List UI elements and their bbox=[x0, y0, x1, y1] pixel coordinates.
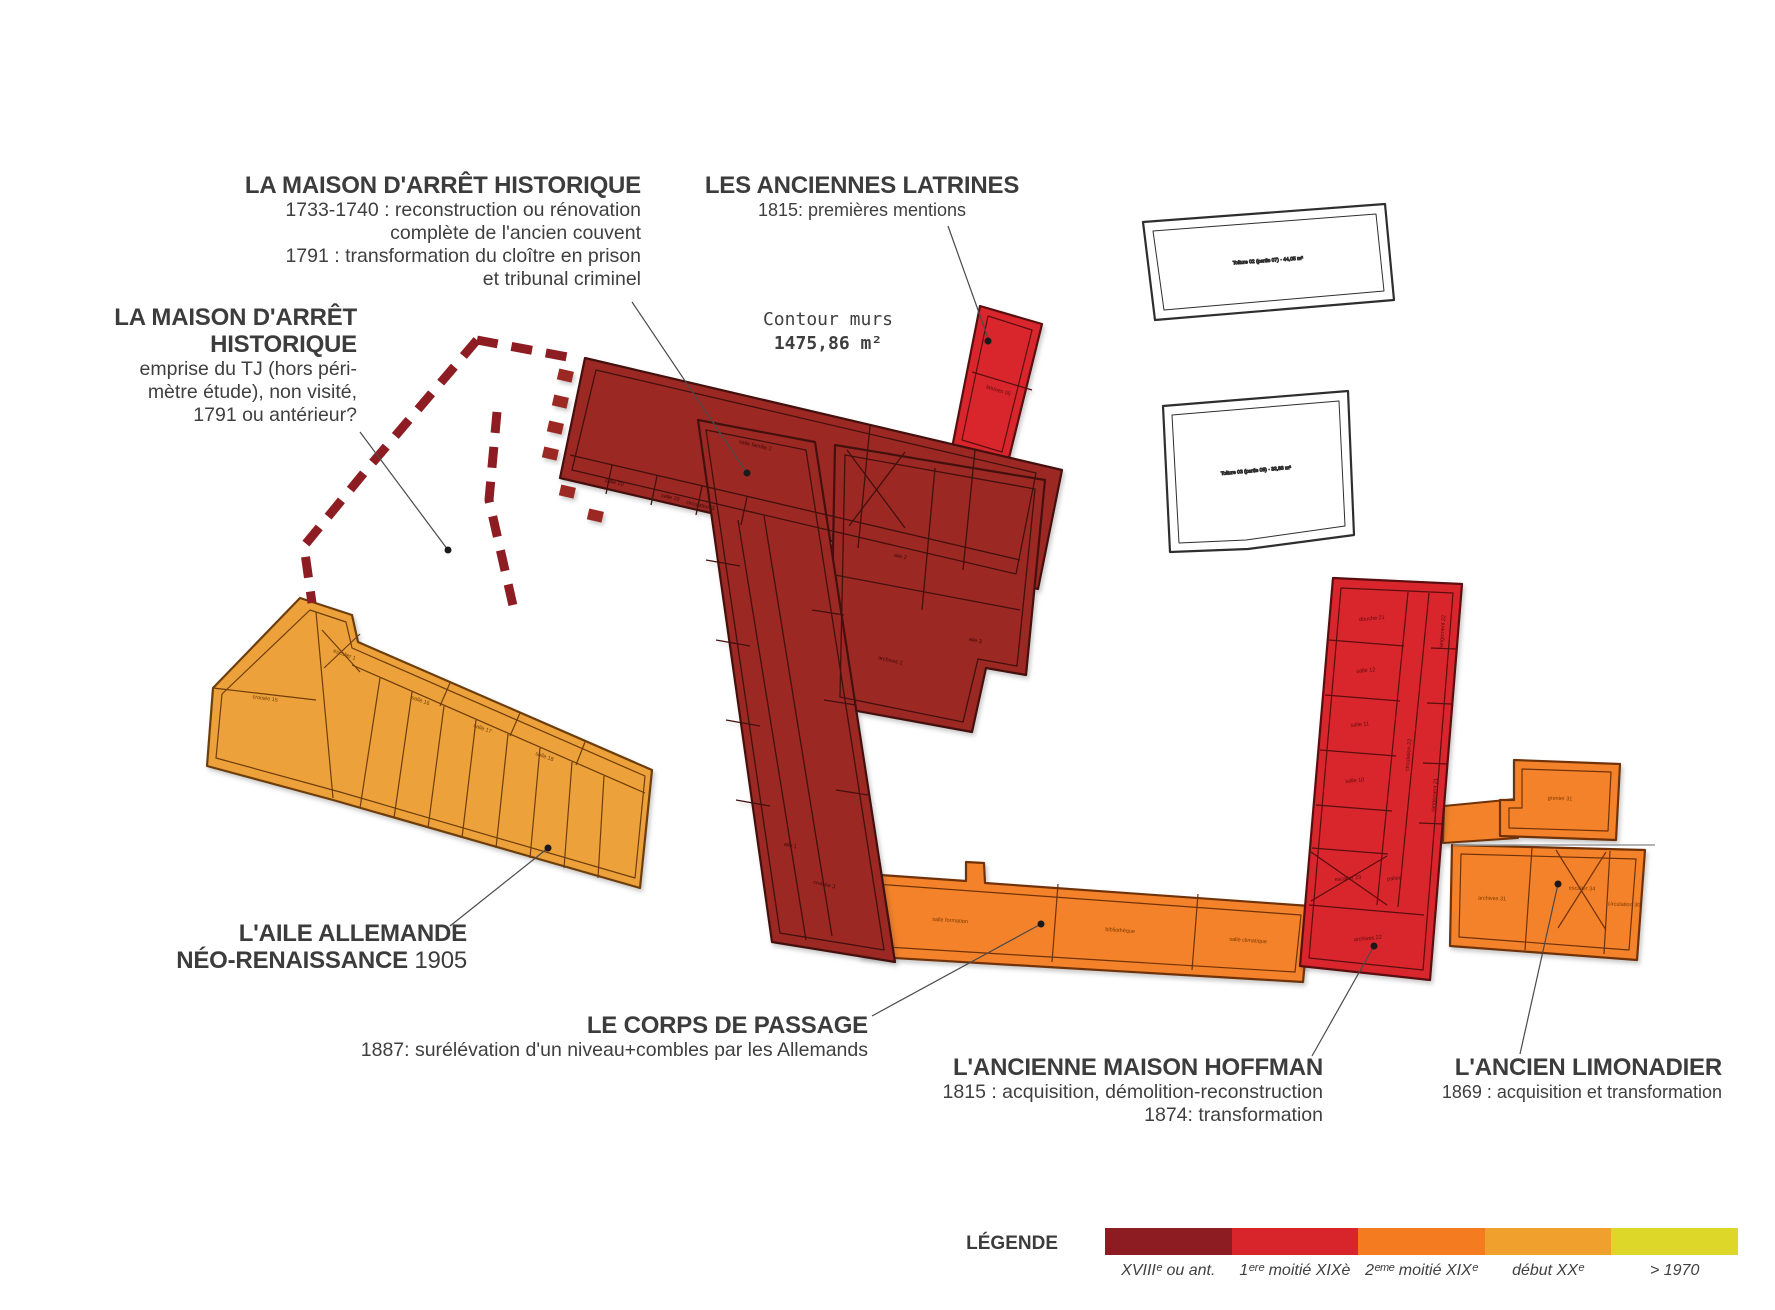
annotation-title: L'ANCIENNE MAISON HOFFMAN bbox=[843, 1054, 1323, 1081]
annotation-line: 1733-1740 : reconstruction ou rénovation bbox=[181, 199, 641, 222]
legend-swatch-xix-1 bbox=[1232, 1228, 1359, 1255]
room-label: palier bbox=[1387, 875, 1401, 882]
building-corps-de-passage: salle formation bibliothèque salle clima… bbox=[860, 862, 1310, 982]
annotation-line: 1791 ou antérieur? bbox=[57, 404, 357, 427]
legend-item: 2ᵉᵐᵉ moitié XIXᵉ bbox=[1358, 1228, 1485, 1280]
legend-item-label: > 1970 bbox=[1611, 1262, 1738, 1280]
room-label: grenier 31 bbox=[1548, 796, 1573, 803]
annotation-title: LA MAISON D'ARRÊT bbox=[57, 304, 357, 331]
annotation-line: 1874: transformation bbox=[843, 1104, 1323, 1127]
annotation-title: L'ANCIEN LIMONADIER bbox=[1382, 1054, 1722, 1081]
annotation-year: 1905 bbox=[414, 947, 467, 974]
annotation-subtitle: 1869 : acquisition et transformation bbox=[1382, 1081, 1722, 1103]
building-maison-hoffman: douche 21 salle 12 salle 11 salle 10 cir… bbox=[1300, 578, 1462, 980]
annotation-title: LES ANCIENNES LATRINES bbox=[662, 172, 1062, 199]
annotation-line: mètre étude), non visité, bbox=[57, 381, 357, 404]
annotation-subtitle: 1815: premières mentions bbox=[662, 199, 1062, 221]
legend-title: LÉGENDE bbox=[966, 1233, 1058, 1255]
annotation-line: complète de l'ancien couvent bbox=[181, 222, 641, 245]
legend-item-label: 2ᵉᵐᵉ moitié XIXᵉ bbox=[1358, 1262, 1485, 1280]
annotation-line: 1791 : transformation du cloître en pris… bbox=[181, 245, 641, 268]
annotation-title: LA MAISON D'ARRÊT HISTORIQUE bbox=[181, 172, 641, 199]
room-label: escalier 34 bbox=[1569, 886, 1596, 893]
annotation-line: emprise du TJ (hors péri- bbox=[57, 358, 357, 381]
building-limonadier: grenier 31 archives 31 escalier 34 circu… bbox=[1443, 760, 1645, 960]
legend-swatch-1970 bbox=[1611, 1228, 1738, 1255]
annotation-latrines: LES ANCIENNES LATRINES 1815: premières m… bbox=[662, 172, 1062, 221]
legend-swatch-xviii bbox=[1105, 1228, 1232, 1255]
building-latrines: latrines 05 bbox=[952, 306, 1042, 462]
annotation-title: LE CORPS DE PASSAGE bbox=[268, 1012, 868, 1039]
legend-item: 1ᵉʳᵉ moitié XIXè bbox=[1232, 1228, 1359, 1280]
legend-item: début XXᵉ bbox=[1485, 1228, 1612, 1280]
annotation-subtitle: 1887: surélévation d'un niveau+combles p… bbox=[268, 1039, 868, 1062]
contour-label: Contour murs bbox=[700, 308, 956, 332]
legend-strip: XVIIIᵉ ou ant. 1ᵉʳᵉ moitié XIXè 2ᵉᵐᵉ moi… bbox=[1105, 1228, 1738, 1280]
room-label: archives 31 bbox=[1478, 896, 1506, 903]
building-roof-outline: Toiture 02 (partie 07) · 44,05 m² Toitur… bbox=[1143, 204, 1394, 552]
legend-item-label: début XXᵉ bbox=[1485, 1262, 1612, 1280]
annotation-contour-murs: Contour murs 1475,86 m² bbox=[700, 308, 956, 356]
contour-area-value: 1475,86 m² bbox=[700, 332, 956, 356]
annotation-emprise: LA MAISON D'ARRÊT HISTORIQUE emprise du … bbox=[57, 304, 357, 427]
legend-swatch-xx bbox=[1485, 1228, 1612, 1255]
annotation-aile-allemande: L'AILE ALLEMANDE NÉO-RENAISSANCE 1905 bbox=[107, 920, 467, 974]
legend-item: > 1970 bbox=[1611, 1228, 1738, 1280]
annotation-corps-de-passage: LE CORPS DE PASSAGE 1887: surélévation d… bbox=[268, 1012, 868, 1062]
room-label: circulation 30 bbox=[1608, 901, 1641, 908]
annotation-title: NÉO-RENAISSANCE 1905 bbox=[107, 947, 467, 974]
annotation-maison-hoffman: L'ANCIENNE MAISON HOFFMAN 1815 : acquisi… bbox=[843, 1054, 1323, 1127]
annotation-title: L'AILE ALLEMANDE bbox=[107, 920, 467, 947]
annotation-line: et tribunal criminel bbox=[181, 268, 641, 291]
legend-item: XVIIIᵉ ou ant. bbox=[1105, 1228, 1232, 1280]
legend-item-label: XVIIIᵉ ou ant. bbox=[1105, 1262, 1232, 1280]
floorplan-page: { "annotations": { "maison_arret": { "ti… bbox=[0, 0, 1775, 1310]
annotation-maison-arret: LA MAISON D'ARRÊT HISTORIQUE 1733-1740 :… bbox=[181, 172, 641, 291]
building-aile-allemande: croisée 15 escalier 1 salle 16 salle 17 … bbox=[207, 598, 652, 888]
annotation-limonadier: L'ANCIEN LIMONADIER 1869 : acquisition e… bbox=[1382, 1054, 1722, 1103]
legend-item-label: 1ᵉʳᵉ moitié XIXè bbox=[1232, 1262, 1359, 1280]
annotation-line: 1815 : acquisition, démolition-reconstru… bbox=[843, 1081, 1323, 1104]
legend-swatch-xix-2 bbox=[1358, 1228, 1485, 1255]
annotation-title: HISTORIQUE bbox=[57, 331, 357, 358]
